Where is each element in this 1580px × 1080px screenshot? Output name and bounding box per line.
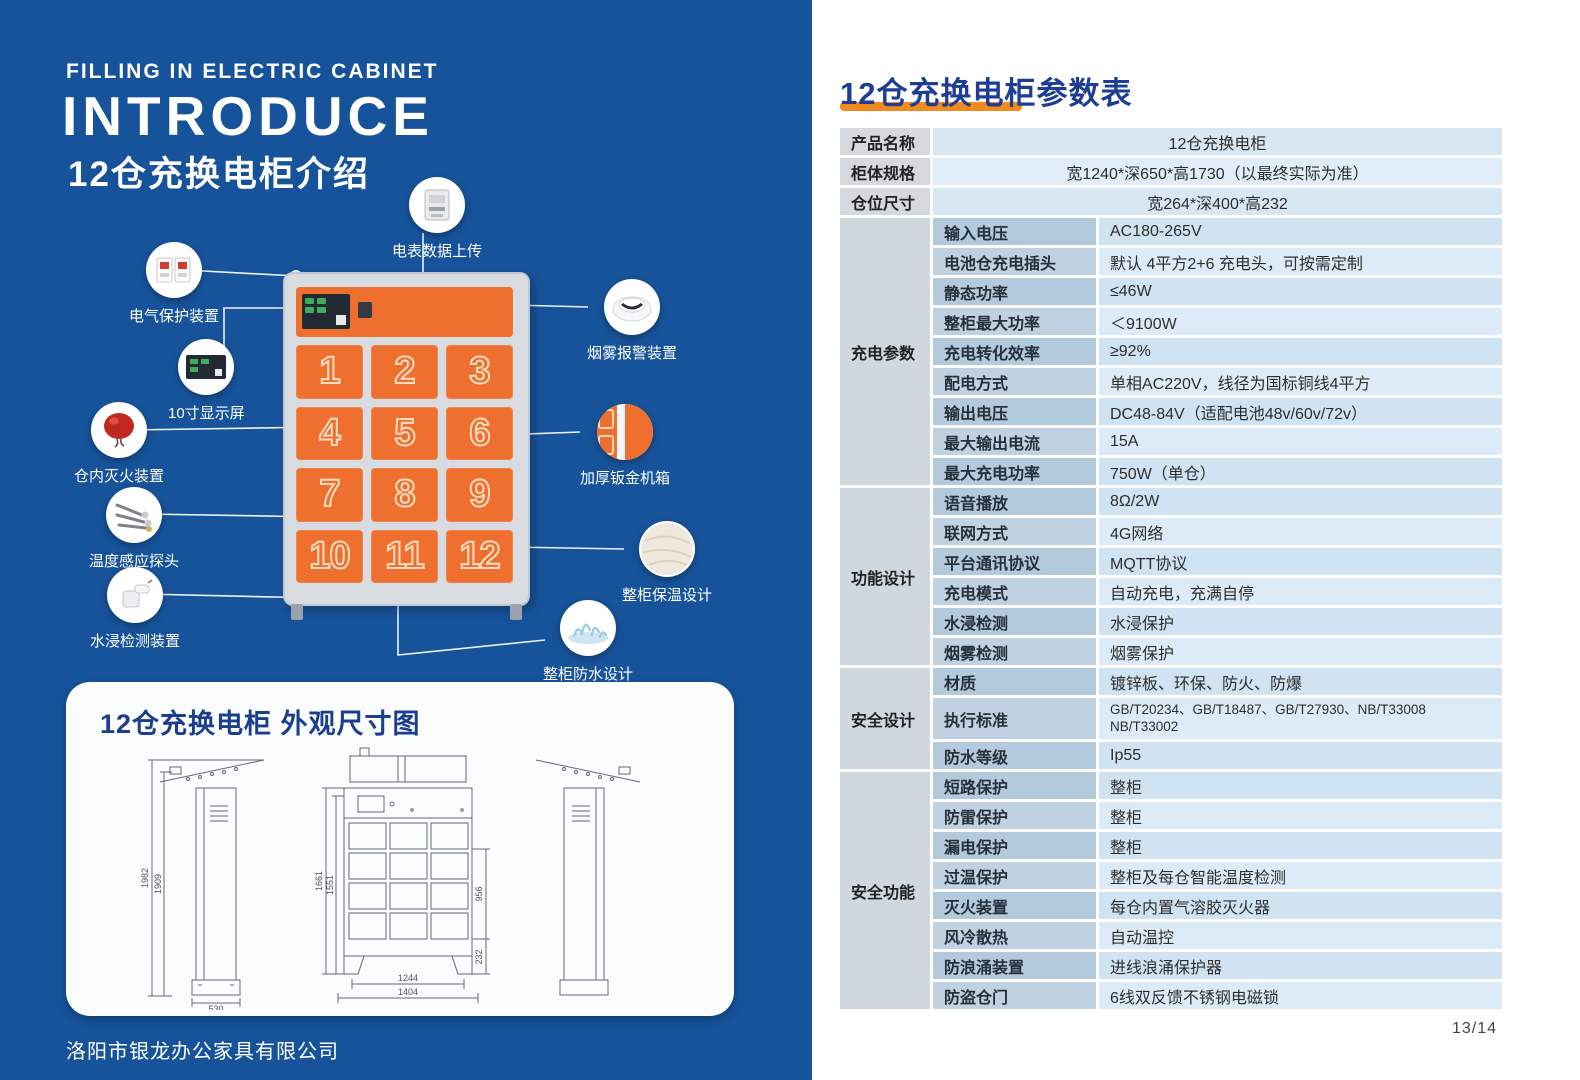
row-label: 充电模式 bbox=[933, 578, 1096, 605]
door-5: 5 bbox=[371, 407, 438, 461]
intro-panel: FILLING IN ELECTRIC CABINET INTRODUCE 12… bbox=[0, 0, 812, 1080]
cabinet-leg bbox=[291, 604, 303, 620]
row-value: 单相AC220V，线径为国标铜线4平方 bbox=[1099, 368, 1502, 395]
callout-display: 10寸显示屏 bbox=[168, 339, 245, 423]
title-en-large: INTRODUCE bbox=[62, 84, 434, 148]
row-value: 8Ω/2W bbox=[1099, 488, 1502, 515]
row-value: 整柜及每仓智能温度检测 bbox=[1099, 862, 1502, 889]
section-safety-design: 安全设计 材质 镀锌板、环保、防火、防爆 执行标准 GB/T20234、GB/T… bbox=[840, 668, 1502, 769]
sheet-metal-icon bbox=[597, 404, 653, 460]
row-label: 充电转化效率 bbox=[933, 338, 1096, 365]
row-label: 输入电压 bbox=[933, 218, 1096, 245]
table-row: 产品名称 12仓充换电柜 bbox=[840, 128, 1502, 155]
row-value: 进线浪涌保护器 bbox=[1099, 952, 1502, 979]
row-label: 灭火装置 bbox=[933, 892, 1096, 919]
cabinet-illustration: 1 2 3 4 5 6 7 8 9 10 11 12 bbox=[283, 272, 530, 606]
row-label: 最大充电功率 bbox=[933, 458, 1096, 485]
row-label: 产品名称 bbox=[840, 128, 930, 155]
door-1: 1 bbox=[296, 345, 363, 399]
fire-extinguisher-ball-icon bbox=[99, 409, 139, 451]
callout-probe: 温度感应探头 bbox=[89, 487, 179, 571]
door-6: 6 bbox=[446, 407, 513, 461]
brochure-page: FILLING IN ELECTRIC CABINET INTRODUCE 12… bbox=[0, 0, 1580, 1080]
spec-panel: 12仓充换电柜参数表 产品名称 12仓充换电柜 柜体规格 宽1240*深650*… bbox=[812, 0, 1580, 1080]
dimension-drawings: 1982 1909 530 1661 1551 956 232 1244 140… bbox=[68, 744, 732, 1010]
callout-breaker: 电气保护装置 bbox=[129, 242, 219, 326]
dim-1982: 1982 bbox=[140, 868, 150, 888]
callout-meter: 电表数据上传 bbox=[392, 177, 482, 261]
dim-530: 530 bbox=[208, 1004, 223, 1010]
door-2: 2 bbox=[371, 345, 438, 399]
dim-232: 232 bbox=[474, 949, 484, 964]
door-11: 11 bbox=[371, 530, 438, 584]
row-label: 材质 bbox=[933, 668, 1096, 695]
circuit-breaker-icon bbox=[154, 253, 194, 287]
door-9: 9 bbox=[446, 468, 513, 522]
callout-waterproof: 整柜防水设计 bbox=[543, 600, 633, 684]
row-value: 15A bbox=[1099, 428, 1502, 455]
dim-1244: 1244 bbox=[398, 973, 418, 983]
row-value: 4G网络 bbox=[1099, 518, 1502, 545]
door-10: 10 bbox=[296, 530, 363, 584]
cabinet-header-panel bbox=[296, 287, 513, 337]
row-value: 整柜 bbox=[1099, 802, 1502, 829]
row-label: 风冷散热 bbox=[933, 922, 1096, 949]
row-label: 整柜最大功率 bbox=[933, 308, 1096, 335]
row-value: 每仓内置气溶胶灭火器 bbox=[1099, 892, 1502, 919]
table-row: 仓位尺寸 宽264*深400*高232 bbox=[840, 188, 1502, 215]
row-value: 烟雾保护 bbox=[1099, 638, 1502, 665]
insulation-ball-icon bbox=[639, 521, 695, 577]
spec-table: 产品名称 12仓充换电柜 柜体规格 宽1240*深650*高1730（以最终实际… bbox=[840, 128, 1502, 1012]
row-value: 6线双反馈不锈钢电磁锁 bbox=[1099, 982, 1502, 1009]
door-4: 4 bbox=[296, 407, 363, 461]
row-label: 最大输出电流 bbox=[933, 428, 1096, 455]
row-value: 宽264*深400*高232 bbox=[933, 188, 1502, 215]
row-label: 过温保护 bbox=[933, 862, 1096, 889]
row-label: 执行标准 bbox=[933, 698, 1096, 739]
dimensions-panel: 12仓充换电柜 外观尺寸图 bbox=[66, 682, 734, 1016]
temperature-probe-icon bbox=[112, 495, 156, 535]
qr-code-icon bbox=[336, 315, 346, 325]
row-value: ≥92% bbox=[1099, 338, 1502, 365]
row-value: 自动充电，充满自停 bbox=[1099, 578, 1502, 605]
section-category: 充电参数 bbox=[840, 218, 930, 485]
row-value: 整柜 bbox=[1099, 772, 1502, 799]
dim-1404: 1404 bbox=[398, 987, 418, 997]
row-value: ＜9100W bbox=[1099, 308, 1502, 335]
control-screen-icon bbox=[302, 294, 350, 329]
row-label: 配电方式 bbox=[933, 368, 1096, 395]
row-label: 柜体规格 bbox=[840, 158, 930, 185]
dimensions-title: 12仓充换电柜 外观尺寸图 bbox=[100, 702, 421, 741]
row-value: 镀锌板、环保、防火、防爆 bbox=[1099, 668, 1502, 695]
row-label: 联网方式 bbox=[933, 518, 1096, 545]
water-splash-icon bbox=[564, 608, 612, 648]
row-label: 水浸检测 bbox=[933, 608, 1096, 635]
row-value: GB/T20234、GB/T18487、GB/T27930、NB/T33008 … bbox=[1099, 698, 1502, 739]
page-number: 13/14 bbox=[1452, 1020, 1497, 1038]
row-value: 宽1240*深650*高1730（以最终实际为准） bbox=[933, 158, 1502, 185]
dim-1661: 1661 bbox=[314, 871, 324, 891]
row-label: 漏电保护 bbox=[933, 832, 1096, 859]
row-label: 防雷保护 bbox=[933, 802, 1096, 829]
smoke-alarm-icon bbox=[610, 289, 654, 325]
row-value: 整柜 bbox=[1099, 832, 1502, 859]
dim-1909: 1909 bbox=[153, 874, 163, 894]
title-zh: 12仓充换电柜介绍 bbox=[68, 146, 370, 197]
row-label: 输出电压 bbox=[933, 398, 1096, 425]
row-label: 仓位尺寸 bbox=[840, 188, 930, 215]
row-label: 语音播放 bbox=[933, 488, 1096, 515]
callout-insulation: 整柜保温设计 bbox=[622, 521, 712, 605]
door-grid: 1 2 3 4 5 6 7 8 9 10 11 12 bbox=[296, 345, 513, 583]
row-value: ≤46W bbox=[1099, 278, 1502, 305]
row-value: 自动温控 bbox=[1099, 922, 1502, 949]
row-value: 750W（单仓） bbox=[1099, 458, 1502, 485]
title-en-small: FILLING IN ELECTRIC CABINET bbox=[66, 60, 439, 84]
door-7: 7 bbox=[296, 468, 363, 522]
company-name: 洛阳市银龙办公家具有限公司 bbox=[66, 1035, 339, 1064]
row-value: 水浸保护 bbox=[1099, 608, 1502, 635]
row-label: 防盗仓门 bbox=[933, 982, 1096, 1009]
callout-sheet-metal: 加厚钣金机箱 bbox=[580, 404, 670, 488]
dim-1551: 1551 bbox=[325, 875, 335, 895]
section-category: 安全设计 bbox=[840, 668, 930, 769]
row-value: MQTT协议 bbox=[1099, 548, 1502, 575]
row-label: 烟雾检测 bbox=[933, 638, 1096, 665]
row-label: 平台通讯协议 bbox=[933, 548, 1096, 575]
row-label: 电池仓充电插头 bbox=[933, 248, 1096, 275]
section-function: 功能设计 语音播放 8Ω/2W 联网方式 4G网络 平台通讯协议 MQTT协议 … bbox=[840, 488, 1502, 665]
row-label: 短路保护 bbox=[933, 772, 1096, 799]
section-safety-function: 安全功能 短路保护 整柜 防雷保护 整柜 漏电保护 整柜 过温保护 整柜及每仓智… bbox=[840, 772, 1502, 1009]
row-label: 防水等级 bbox=[933, 742, 1096, 769]
callout-smoke-alarm: 烟雾报警装置 bbox=[587, 279, 677, 363]
door-8: 8 bbox=[371, 468, 438, 522]
table-row: 柜体规格 宽1240*深650*高1730（以最终实际为准） bbox=[840, 158, 1502, 185]
row-value: Ip55 bbox=[1099, 742, 1502, 769]
dim-956: 956 bbox=[474, 886, 484, 901]
section-category: 功能设计 bbox=[840, 488, 930, 665]
row-label: 防浪涌装置 bbox=[933, 952, 1096, 979]
door-3: 3 bbox=[446, 345, 513, 399]
water-sensor-icon bbox=[115, 575, 155, 615]
spec-heading: 12仓充换电柜参数表 bbox=[840, 68, 1132, 113]
row-value: AC180-265V bbox=[1099, 218, 1502, 245]
door-12: 12 bbox=[446, 530, 513, 584]
display-screen-icon bbox=[184, 352, 228, 382]
brand-logo-icon bbox=[358, 302, 372, 318]
section-category: 安全功能 bbox=[840, 772, 930, 1009]
row-value: 默认 4平方2+6 充电头，可按需定制 bbox=[1099, 248, 1502, 275]
cabinet-leg bbox=[510, 604, 522, 620]
section-charging: 充电参数 输入电压 AC180-265V 电池仓充电插头 默认 4平方2+6 充… bbox=[840, 218, 1502, 485]
callout-water-sensor: 水浸检测装置 bbox=[90, 567, 180, 651]
callout-fire-ball: 仓内灭火装置 bbox=[74, 402, 164, 486]
row-value: 12仓充换电柜 bbox=[933, 128, 1502, 155]
row-value: DC48-84V（适配电池48v/60v/72v） bbox=[1099, 398, 1502, 425]
row-label: 静态功率 bbox=[933, 278, 1096, 305]
electric-meter-icon bbox=[420, 186, 454, 224]
